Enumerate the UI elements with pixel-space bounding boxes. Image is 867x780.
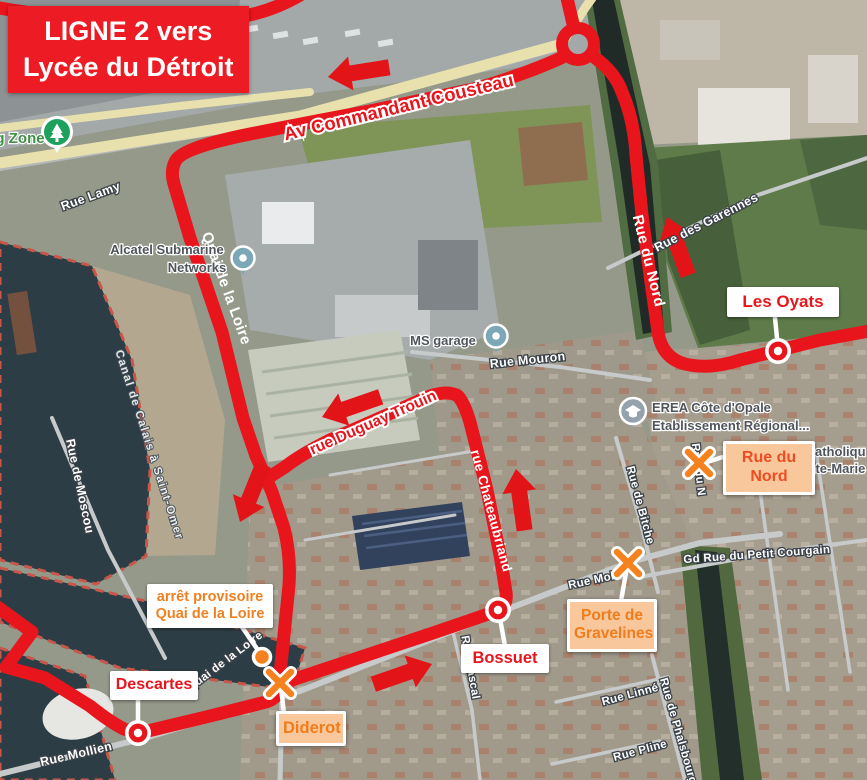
arret-provisoire-line-1: arrêt provisoire bbox=[151, 589, 269, 606]
closed-stop-marker-rue-du-nord bbox=[688, 452, 710, 474]
stop-callout-descartes: Descartes bbox=[110, 671, 198, 700]
stop-callout-porte-de-gravelines: Porte de Gravelines bbox=[567, 599, 657, 652]
stop-marker-descartes bbox=[125, 720, 151, 746]
stop-callout-rue-du-nord: Rue du Nord bbox=[723, 441, 815, 495]
poi-label-alcatel-2: Networks bbox=[168, 260, 227, 275]
closed-stop-marker-porte-de-gravelines bbox=[617, 552, 639, 574]
stop-callout-les-oyats: Les Oyats bbox=[727, 287, 839, 317]
stop-callout-arret-provisoire: arrêt provisoire Quai de la Loire bbox=[147, 584, 273, 628]
poi-label-erea-1: EREA Côte d'Opale bbox=[652, 400, 771, 415]
closed-stop-marker-diderot bbox=[269, 672, 291, 694]
arret-provisoire-line-2: Quai de la Loire bbox=[151, 606, 269, 623]
poi-label-catholique-1: atholiqu bbox=[815, 444, 866, 459]
title-line-1: LIGNE 2 vers bbox=[23, 14, 234, 50]
map-canvas: Rue Lamy Rue de Moscou Canal de Calais à… bbox=[0, 0, 867, 780]
stop-callout-diderot: Diderot bbox=[276, 711, 346, 746]
poi-label-zone: g Zone bbox=[0, 130, 45, 147]
stop-marker-bossuet bbox=[485, 597, 511, 623]
poi-label-ms-garage: MS garage bbox=[410, 333, 476, 348]
title-box: LIGNE 2 vers Lycée du Détroit bbox=[8, 6, 249, 93]
porte-de-gravelines-line-2: Gravelines bbox=[574, 625, 650, 643]
poi-label-alcatel-1: Alcatel Submarine bbox=[110, 242, 223, 257]
poi-label-erea-2: Etablissement Régional... bbox=[652, 418, 810, 433]
title-line-2: Lycée du Détroit bbox=[23, 50, 234, 86]
porte-de-gravelines-line-1: Porte de bbox=[574, 607, 650, 625]
stop-callout-bossuet: Bossuet bbox=[461, 644, 549, 673]
stop-marker-les-oyats bbox=[765, 338, 791, 364]
route-roundabout-entry bbox=[566, 0, 574, 28]
provisional-stop-marker-quai-de-la-loire bbox=[254, 649, 271, 666]
map-svg: Rue Lamy Rue de Moscou Canal de Calais à… bbox=[0, 0, 867, 780]
